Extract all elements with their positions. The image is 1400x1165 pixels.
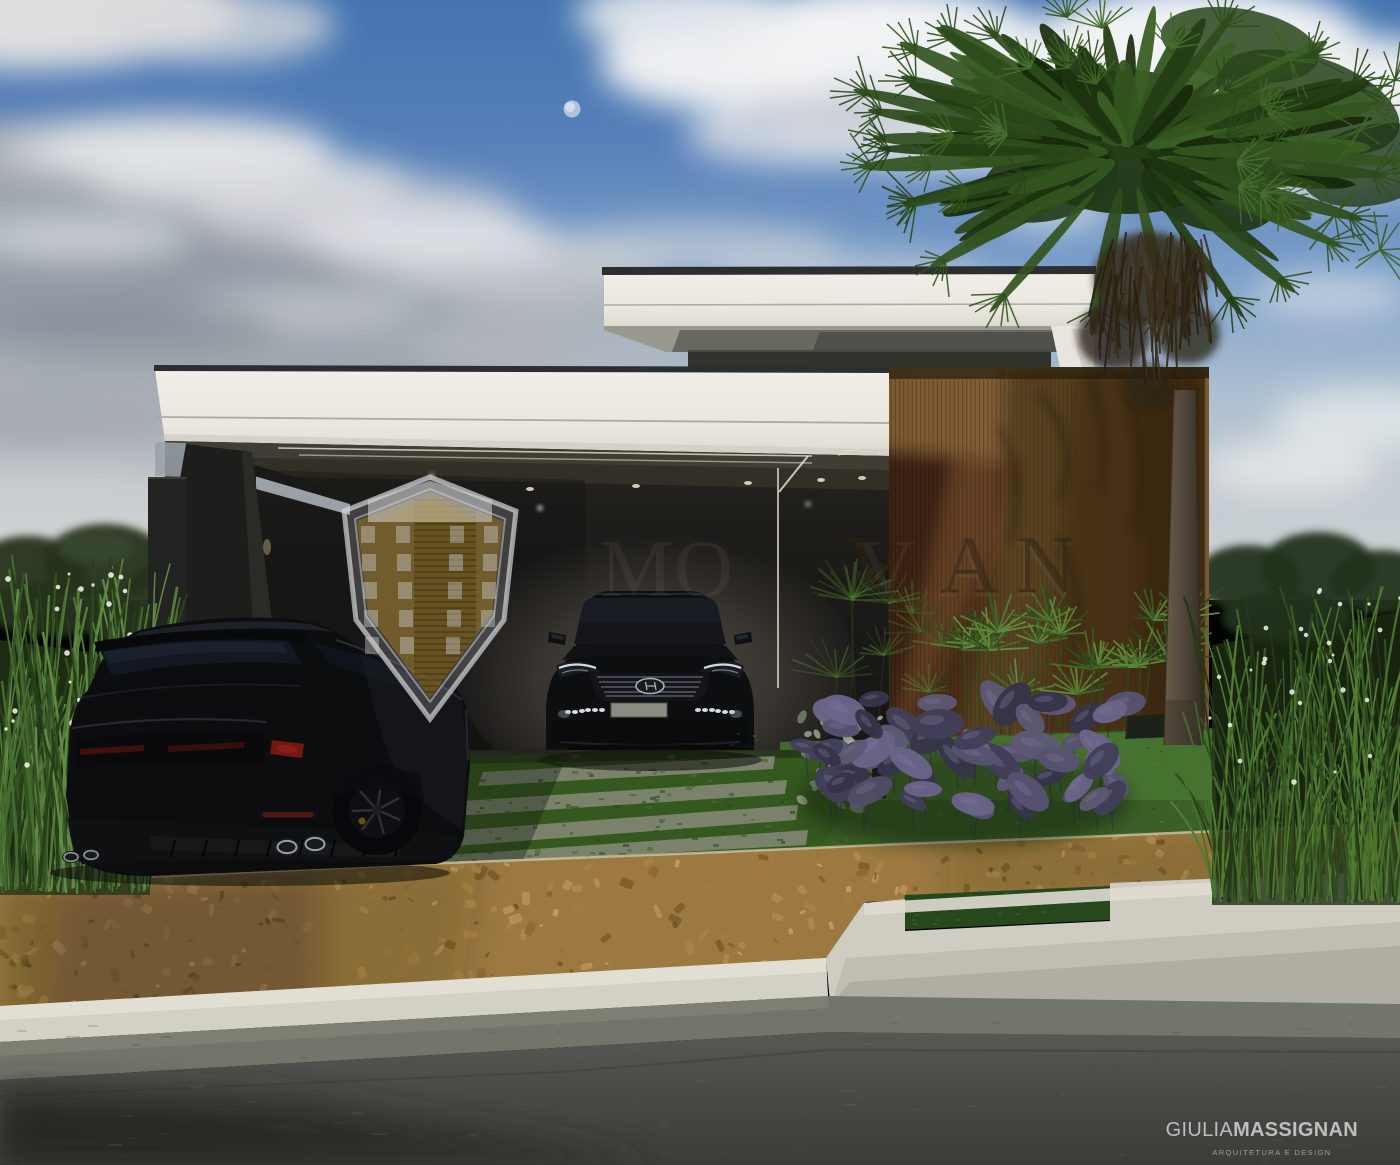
svg-text:A: A <box>940 519 999 610</box>
svg-text:GIULIAMASSIGNAN: GIULIAMASSIGNAN <box>1166 1119 1358 1141</box>
svg-text:ARQUITETURA E DESIGN: ARQUITETURA E DESIGN <box>1212 1148 1331 1157</box>
svg-text:V: V <box>845 519 904 610</box>
svg-text:M: M <box>600 523 673 614</box>
svg-text:N: N <box>1016 519 1075 610</box>
svg-text:O: O <box>674 523 733 614</box>
